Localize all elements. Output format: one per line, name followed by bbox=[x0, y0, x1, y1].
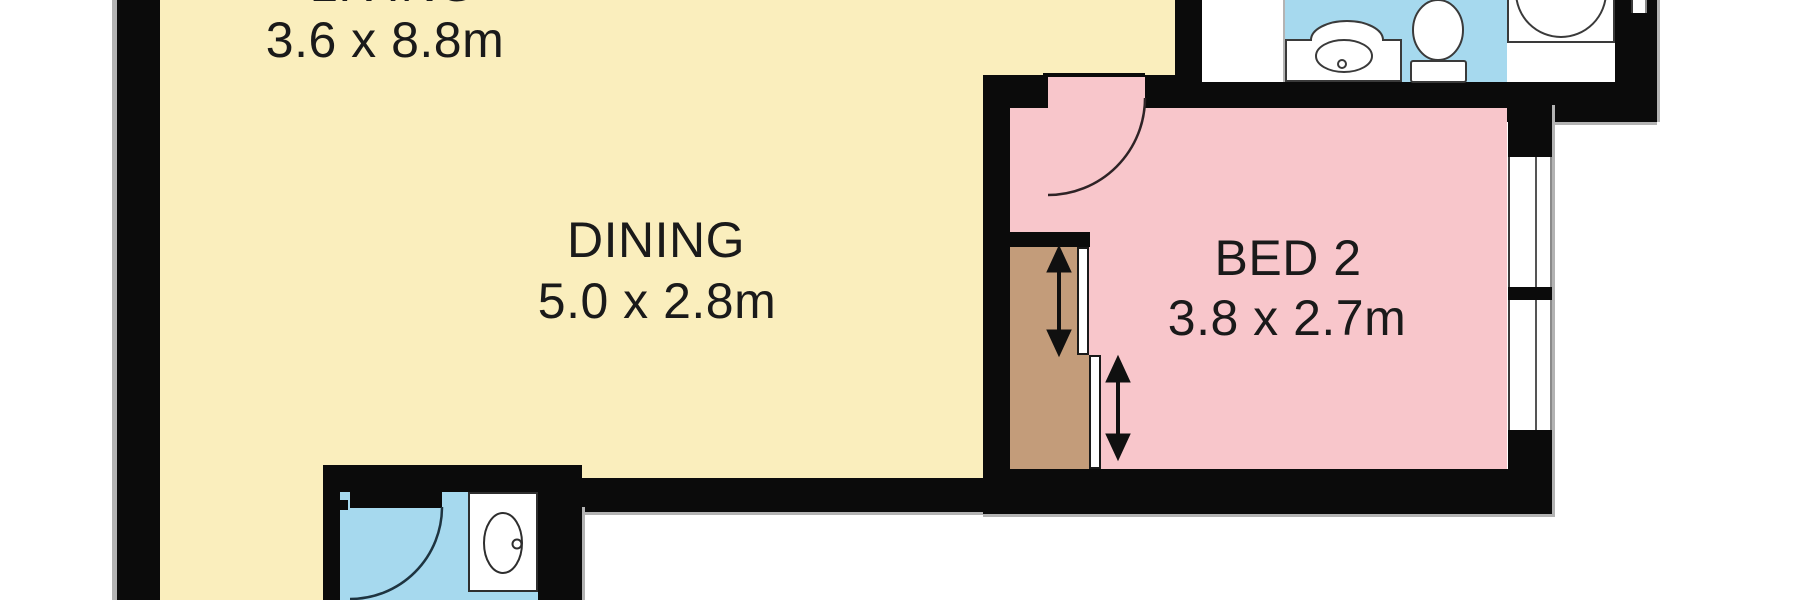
bathroom-door-header bbox=[350, 492, 442, 508]
wardrobe-floor bbox=[1010, 247, 1077, 469]
wash-basin-unit bbox=[468, 492, 538, 592]
wall-right-mullion bbox=[1508, 287, 1552, 300]
bathroom-door-hinge-tab bbox=[323, 500, 348, 510]
living-room-dimensions: 3.6 x 8.8m bbox=[266, 15, 504, 65]
bed2-room-label: BED 2 bbox=[1214, 233, 1361, 283]
dining-room-label: DINING bbox=[567, 215, 745, 265]
dining-room-dimensions: 5.0 x 2.8m bbox=[538, 276, 776, 326]
wall-bottom-dining bbox=[560, 478, 985, 512]
wall-dining-bed2 bbox=[983, 75, 1010, 514]
outline-left bbox=[112, 0, 117, 600]
floor-plan: LIVING 3.6 x 8.8m DINING 5.0 x 2.8m BED … bbox=[0, 0, 1800, 600]
wall-entry-vertical bbox=[1175, 0, 1202, 108]
wall-top-right-vertical bbox=[1615, 0, 1657, 122]
wall-bathroom-bottom-left bbox=[323, 465, 340, 600]
wall-right-upper bbox=[1508, 108, 1552, 157]
window-bed2-upper bbox=[1508, 157, 1552, 287]
bathroom-top-floor bbox=[1285, 0, 1507, 82]
outline-block-bottom bbox=[1552, 122, 1657, 125]
outline-bottom-dining bbox=[585, 512, 983, 515]
entry-hall-floor bbox=[1202, 0, 1283, 82]
wall-bathroom-bottom-right bbox=[538, 465, 582, 600]
window-top-right-slot bbox=[1631, 0, 1647, 13]
bed2-room-dimensions: 3.8 x 2.7m bbox=[1168, 293, 1406, 343]
wall-bottom-bed2 bbox=[983, 469, 1552, 514]
outline-entry-bath-divider bbox=[1283, 0, 1285, 82]
wall-left bbox=[117, 0, 160, 600]
outline-bottom-bed2 bbox=[983, 514, 1552, 517]
bed2-door-threshold-line bbox=[1043, 73, 1145, 77]
wall-wardrobe-top bbox=[1010, 232, 1090, 247]
shower bbox=[1508, 0, 1614, 42]
outline-bath-right bbox=[582, 507, 585, 600]
living-room-label: LIVING bbox=[310, 0, 477, 9]
wall-bed2-top-left bbox=[983, 75, 1048, 108]
wall-under-bathroom-top bbox=[1202, 82, 1507, 108]
wardrobe-floor-lower bbox=[1077, 355, 1089, 469]
wardrobe-sliding-door-2 bbox=[1089, 355, 1101, 469]
living-room-floor-bottom-left bbox=[160, 478, 323, 600]
window-bed2-lower bbox=[1508, 300, 1552, 430]
wardrobe-sliding-door-1 bbox=[1077, 247, 1089, 355]
outline-top-right bbox=[1657, 0, 1660, 122]
outline-right bbox=[1552, 105, 1555, 517]
